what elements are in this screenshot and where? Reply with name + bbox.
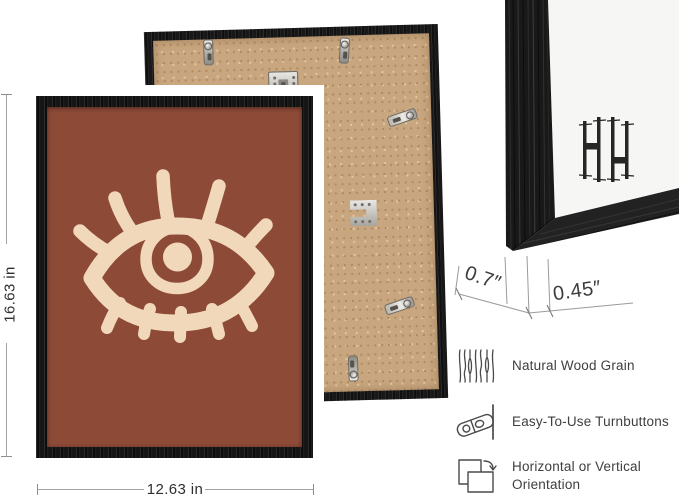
width-dimension-line-left xyxy=(37,489,144,490)
feature-orientation-label: Horizontal or Vertical Orientation xyxy=(512,458,641,494)
feature-turnbuttons-label: Easy-To-Use Turnbuttons xyxy=(512,413,669,431)
corner-dimension-ticks xyxy=(456,288,553,319)
frame-corner-detail: 0.7″ 0.45″ xyxy=(440,0,679,330)
feature-turnbuttons: Easy-To-Use Turnbuttons xyxy=(455,402,669,442)
width-dimension-tick-right xyxy=(313,484,314,495)
height-dimension-tick-bottom xyxy=(1,456,12,457)
feature-wood-grain: Natural Wood Grain xyxy=(455,348,635,384)
turnbutton-top-left xyxy=(203,39,214,65)
frame-front-view xyxy=(36,96,313,458)
turnbutton-top-right xyxy=(339,37,351,64)
height-dimension-label: 16.63 in xyxy=(2,258,19,332)
depth-dimension-label: 0.7″ xyxy=(462,262,504,295)
feature-orientation-label-line1: Horizontal or Vertical xyxy=(512,458,641,476)
turnbutton-right-upper xyxy=(386,107,418,127)
turnbutton-bottom xyxy=(348,355,359,381)
width-dimension-label: 12.63 in xyxy=(139,481,211,498)
feature-orientation: Horizontal or Vertical Orientation xyxy=(455,456,641,496)
eye-art-print xyxy=(47,107,302,447)
width-dimension-tick-left xyxy=(37,484,38,495)
wood-grain-icon xyxy=(455,348,499,384)
height-dimension-line-bottom xyxy=(6,343,7,457)
eye-pupil xyxy=(163,243,192,272)
orientation-icon xyxy=(455,456,499,496)
corner-bracket xyxy=(350,200,378,227)
product-image-canvas: 16.63 in xyxy=(0,0,679,502)
abstract-eye-illustration xyxy=(47,107,302,447)
turnbutton-icon xyxy=(455,402,499,442)
turnbutton-right-lower xyxy=(384,296,416,316)
corner-art-area xyxy=(548,0,679,218)
face-width-dimension-label: 0.45″ xyxy=(552,277,603,306)
height-dimension-line-top xyxy=(6,94,7,244)
height-dimension-tick-top xyxy=(1,94,12,95)
sawtooth-hanger xyxy=(268,71,299,98)
feature-orientation-label-line2: Orientation xyxy=(512,476,641,494)
width-dimension-line-right xyxy=(205,489,313,490)
feature-wood-grain-label: Natural Wood Grain xyxy=(512,357,635,375)
